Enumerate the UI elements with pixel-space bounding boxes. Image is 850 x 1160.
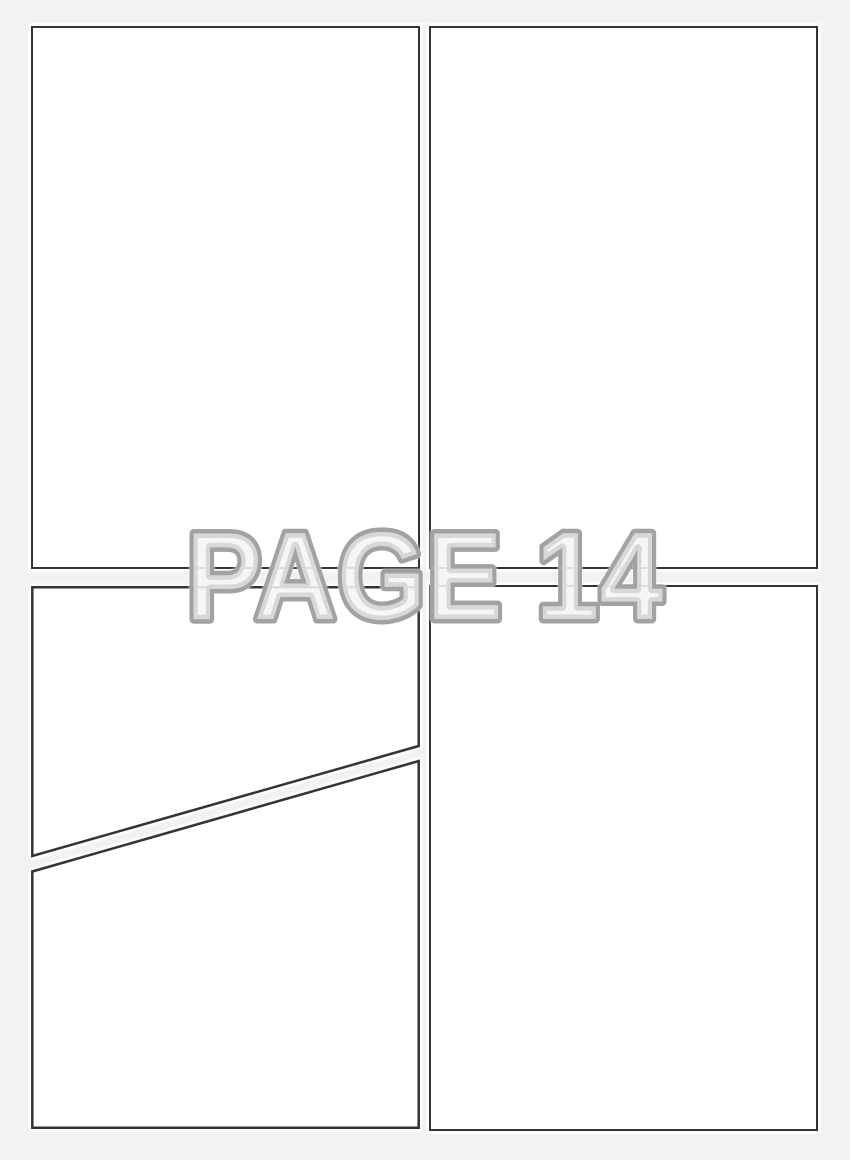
comic-page-template: PAGE 14 xyxy=(0,0,850,1160)
panel-bottom-left-upper-halo xyxy=(32,587,418,856)
panel-bottom-right xyxy=(429,585,818,1131)
panel-bottom-left-lower xyxy=(32,761,418,1128)
panel-bottom-left-lower-halo xyxy=(32,761,418,1128)
panel-top-right xyxy=(429,26,818,569)
panel-top-left xyxy=(31,26,420,569)
panel-bottom-left-upper xyxy=(32,587,418,856)
